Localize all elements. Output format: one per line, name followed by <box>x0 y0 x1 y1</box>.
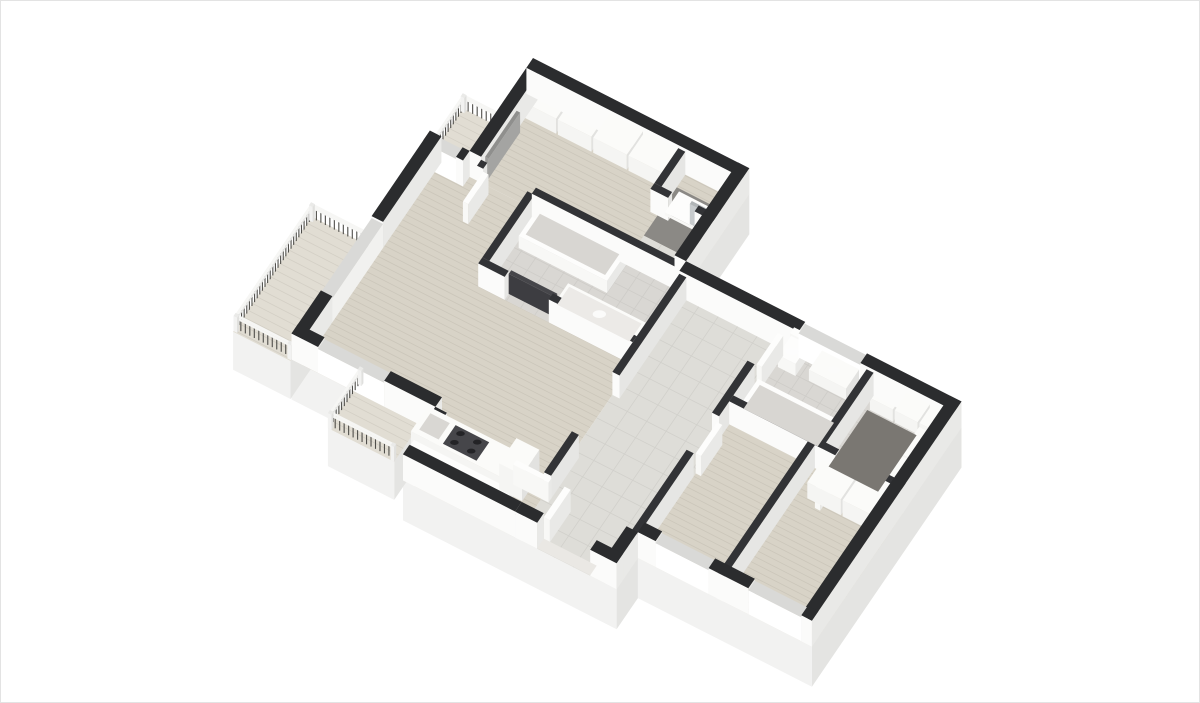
toilet-seat <box>786 347 799 355</box>
page <box>0 0 1200 703</box>
exterior-wall <box>801 606 818 647</box>
stove-burner <box>473 440 482 445</box>
sink-basin <box>828 366 839 373</box>
stove-burner <box>450 440 459 445</box>
stove-burner <box>467 449 476 454</box>
stove-burner <box>456 431 465 436</box>
sink-basin <box>593 310 606 318</box>
floor-plan-3d <box>1 1 1199 702</box>
